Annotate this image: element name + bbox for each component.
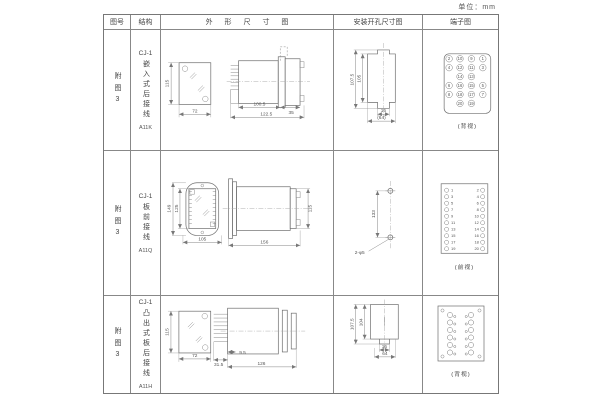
svg-text:13: 13	[469, 74, 474, 79]
svg-text:16: 16	[474, 233, 479, 238]
unit-label: 单位：mm	[458, 2, 496, 12]
row2-structure: 板前接线	[140, 203, 150, 243]
row3-terminal-caption: (背视)	[451, 370, 470, 378]
row2-structure-cell: CJ-1 板前接线 A11Q	[131, 151, 161, 296]
dim-inner-height3: 104	[359, 318, 365, 326]
dim-front-height: 115	[165, 79, 171, 87]
dim-tab-width: 16	[381, 108, 387, 114]
svg-text:17: 17	[469, 92, 474, 97]
dim-body-length: 100.5	[253, 101, 265, 107]
row3-fig-no-cell: 附图3	[104, 296, 131, 393]
row2-outline-cell: 149 125 105 156 115	[161, 151, 334, 296]
svg-text:3: 3	[482, 65, 485, 70]
document-page: 单位：mm 图号 结构 外 形 尺 寸 图 安装开孔尺寸图 端子图 附图3 CJ…	[0, 0, 600, 400]
dim-front-width2: 105	[198, 236, 206, 242]
row1-outline-cell: 115 72 100.5 35 122.5	[161, 30, 334, 151]
dim-offset: 9.5	[239, 350, 246, 356]
row1-fig-no: 附图3	[112, 72, 122, 108]
svg-text:19: 19	[451, 246, 456, 251]
row3-structure: 凸出式板后接线	[140, 309, 150, 379]
row1-terminal-cell: (背视) 2109141211314136161558181772019	[423, 30, 498, 151]
svg-text:1: 1	[482, 56, 485, 61]
svg-text:11: 11	[451, 220, 456, 225]
svg-text:18: 18	[458, 92, 463, 97]
dim-total-length: 122.5	[260, 111, 272, 117]
row3-code: A11H	[139, 384, 152, 390]
svg-text:9: 9	[451, 214, 454, 219]
svg-text:15: 15	[451, 233, 456, 238]
header-mounting-label: 安装开孔尺寸图	[354, 17, 403, 27]
header-outline: 外 形 尺 寸 图	[161, 15, 334, 30]
row1-code: A11K	[139, 125, 152, 131]
header-terminal-label: 端子图	[450, 17, 471, 27]
dim-outer-height3: 107.5	[349, 318, 355, 330]
svg-text:20: 20	[458, 101, 463, 106]
svg-text:8: 8	[477, 207, 480, 212]
svg-text:4: 4	[448, 65, 451, 70]
row2-mounting-cell: 133 2-φ5	[334, 151, 423, 296]
dim-hole-label: 2-φ5	[355, 250, 365, 256]
svg-text:16: 16	[458, 83, 463, 88]
spec-table: 图号 结构 外 形 尺 寸 图 安装开孔尺寸图 端子图 附图3 CJ-1 嵌入式…	[103, 14, 499, 394]
header-fig-no: 图号	[104, 15, 131, 30]
svg-text:6: 6	[448, 83, 451, 88]
header-terminal: 端子图	[423, 15, 498, 30]
svg-text:7: 7	[451, 207, 453, 212]
svg-text:10: 10	[458, 56, 463, 61]
svg-text:12: 12	[474, 220, 478, 225]
row3-outline-cell: 115 72 31.5 9.5 126	[161, 296, 334, 393]
svg-text:5: 5	[482, 83, 485, 88]
row3-mounting-drawing: 107.5 104 16 64	[334, 296, 422, 393]
svg-text:14: 14	[474, 227, 479, 232]
row2-fig-no: 附图3	[112, 205, 122, 241]
svg-text:18: 18	[474, 240, 479, 245]
row1-outline-drawing: 115 72 100.5 35 122.5	[161, 30, 333, 150]
row3-mounting-cell: 107.5 104 16 64	[334, 296, 423, 393]
row1-terminal-diagram: (背视) 2109141211314136161558181772019	[423, 30, 498, 150]
dim-total-length3: 126	[257, 361, 265, 367]
dim-hole-spacing: 133	[371, 210, 377, 218]
svg-text:4: 4	[477, 194, 480, 199]
dim-comb: 31.5	[214, 362, 224, 368]
row1-structure-cell: CJ-1 嵌入式后接线 A11K	[131, 30, 161, 151]
dim-total-length2: 156	[260, 239, 268, 245]
svg-text:8: 8	[448, 92, 451, 97]
dim-side-height: 115	[308, 204, 314, 212]
row1-mounting-cell: 107.5 105 16 (64)	[334, 30, 423, 151]
header-fig-no-label: 图号	[110, 17, 124, 27]
svg-text:11: 11	[469, 65, 474, 70]
svg-text:3: 3	[451, 194, 454, 199]
dim-front-outer-h: 149	[167, 204, 173, 212]
row2-terminal-cell: (前视) 1234567891011121314151617181920	[423, 151, 498, 296]
svg-text:15: 15	[469, 83, 474, 88]
dim-span3: 64	[382, 351, 388, 357]
row2-mounting-drawing: 133 2-φ5	[334, 151, 422, 295]
header-structure-label: 结构	[139, 17, 153, 27]
svg-text:9: 9	[470, 56, 473, 61]
header-structure: 结构	[131, 15, 161, 30]
row2-fig-no-cell: 附图3	[104, 151, 131, 296]
row1-mounting-drawing: 107.5 105 16 (64)	[334, 30, 422, 150]
row1-structure: 嵌入式后接线	[140, 60, 150, 120]
svg-text:2: 2	[477, 188, 479, 193]
svg-text:7: 7	[482, 92, 485, 97]
row3-terminal-diagram: (背视)	[423, 296, 498, 393]
dim-flange: 35	[288, 110, 294, 116]
dim-front-width: 72	[192, 108, 198, 114]
svg-text:14: 14	[458, 74, 463, 79]
header-outline-label: 外 形 尺 寸 图	[206, 17, 294, 27]
svg-text:2: 2	[448, 56, 451, 61]
row2-code: A11Q	[139, 248, 153, 254]
row3-structure-cell: CJ-1 凸出式板后接线 A11H	[131, 296, 161, 393]
svg-text:10: 10	[474, 214, 479, 219]
dim-front-inner-h: 125	[174, 204, 180, 212]
row3-outline-drawing: 115 72 31.5 9.5 126	[161, 296, 333, 393]
row3-model: CJ-1	[139, 299, 153, 306]
svg-text:5: 5	[451, 201, 454, 206]
svg-text:19: 19	[469, 101, 474, 106]
svg-text:6: 6	[477, 201, 480, 206]
dim-tab-width3: 16	[382, 344, 388, 350]
svg-text:20: 20	[474, 246, 479, 251]
row1-model: CJ-1	[139, 50, 153, 57]
dim-front-width3: 72	[192, 353, 198, 359]
dim-inner-height: 105	[357, 74, 363, 82]
svg-text:12: 12	[458, 65, 463, 70]
row2-outline-drawing: 149 125 105 156 115	[161, 151, 333, 295]
svg-text:1: 1	[451, 188, 454, 193]
dim-outer-height: 107.5	[349, 73, 355, 85]
row2-terminal-caption: (前视)	[455, 263, 474, 271]
svg-text:17: 17	[451, 240, 455, 245]
svg-text:13: 13	[451, 227, 456, 232]
dim-span: (64)	[377, 115, 386, 121]
row1-fig-no-cell: 附图3	[104, 30, 131, 151]
row3-fig-no: 附图3	[112, 327, 122, 363]
row1-terminal-caption: (背视)	[458, 122, 477, 130]
row2-model: CJ-1	[139, 193, 153, 200]
header-mounting: 安装开孔尺寸图	[334, 15, 423, 30]
dim-front-height3: 115	[164, 328, 170, 336]
row3-terminal-cell: (背视)	[423, 296, 498, 393]
row2-terminal-diagram: (前视) 1234567891011121314151617181920	[423, 151, 498, 295]
